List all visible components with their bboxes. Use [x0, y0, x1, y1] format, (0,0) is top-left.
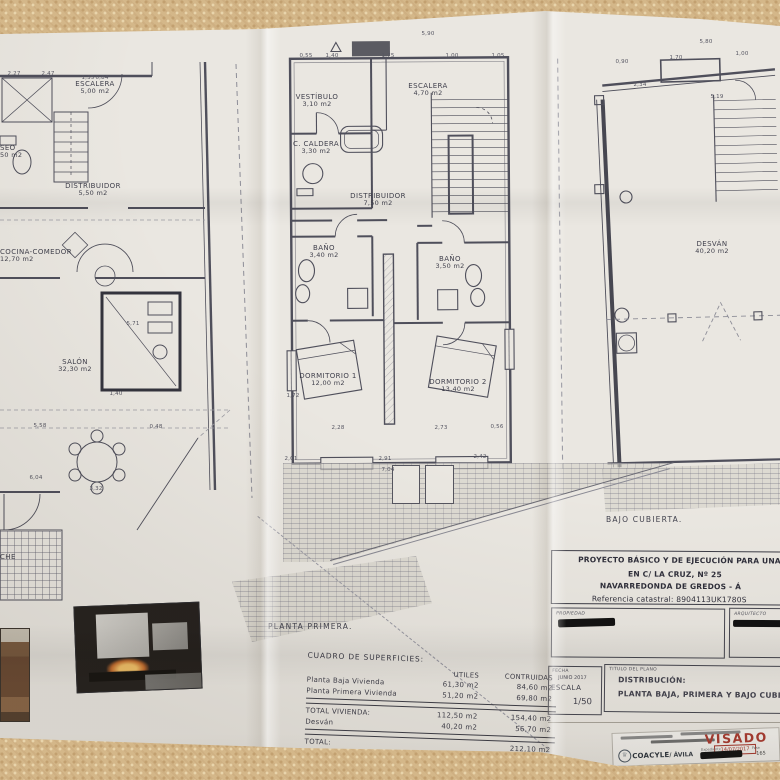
inset-photo-wood-interior	[0, 628, 30, 722]
expediente-redaction-bar	[700, 750, 742, 759]
dimension-label: 0,90	[615, 59, 628, 65]
room-label-salon: SALÓN 32,30 m2	[58, 358, 92, 374]
project-line-1: PROYECTO BÁSICO Y DE EJECUCIÓN PARA UNA …	[578, 555, 780, 566]
escala-fecha-box: FECHA JUNIO 2017 ESCALA 1/50	[548, 666, 603, 716]
fecha-value: JUNIO 2017	[558, 675, 587, 681]
dimension-label: 1,00	[735, 51, 748, 57]
planta-baja-walls	[0, 62, 252, 600]
coacyle-crest-icon: ♕	[618, 749, 631, 762]
dimension-label: 0,48	[149, 424, 162, 430]
fase-number: 165	[756, 751, 766, 757]
escala-label: ESCALA	[551, 684, 581, 692]
caption-planta-primera: PLANTA PRIMERA.	[268, 622, 353, 631]
dimension-label: 5,80	[699, 39, 712, 45]
room-label-vestibulo: VESTÍBULO 3,10 m2	[296, 93, 339, 109]
room-label-bano-2: BAÑO 3,50 m2	[435, 255, 464, 271]
room-label-porche-fragment: CHE	[0, 553, 16, 561]
dimension-label: 2,28	[331, 425, 344, 431]
dimension-label: 2,91	[378, 456, 391, 462]
room-label-bano-1: BAÑO 3,40 m2	[309, 244, 338, 260]
dimension-label: 2,27	[7, 71, 20, 77]
project-line-2: EN C/ LA CRUZ, Nº 25	[628, 569, 722, 579]
coacyle-text: COACYLE	[632, 751, 669, 760]
project-line-4: Referencia catastral: 8904113UK1780S	[592, 594, 747, 604]
sheet-fold-line	[548, 722, 780, 723]
dimension-label: 1,72	[286, 393, 299, 399]
titulo-line-1: DISTRIBUCIÓN:	[618, 675, 686, 685]
arquitecto-redaction-bar	[733, 620, 780, 627]
cuadro-de-superficies: CUADRO DE SUPERFICIES: UTILES CONTRUIDAS…	[304, 651, 557, 756]
room-label-cocina-comedor: COCINA-COMEDOR 12,70 m2	[0, 248, 72, 264]
photo-of-architectural-plan: ESCALERA 5,00 m2 SEO 50 m2 DISTRIBUIDOR …	[0, 0, 780, 780]
propiedad-box: PROPIEDAD	[551, 607, 725, 658]
visado-stamp: VISADO 14/07/2017 ♕ COACYLE / ÁVILA Expe…	[611, 727, 780, 767]
titulo-plano-label: TITULO DEL PLANO	[609, 667, 657, 673]
dimension-label: 7,04	[381, 467, 394, 473]
avila-text: / ÁVILA	[669, 751, 693, 759]
propiedad-label: PROPIEDAD	[556, 611, 585, 616]
dimension-label: 0,56	[490, 424, 503, 430]
room-label-escalera-pb: ESCALERA 5,00 m2	[75, 80, 114, 96]
dimension-label: 1,40	[325, 53, 338, 59]
dimension-label: 2,73	[434, 425, 447, 431]
dimension-label: 2,42	[473, 454, 486, 460]
room-label-caldera: C. CALDERA 3,30 m2	[293, 140, 339, 156]
dimension-label: 2,34	[633, 82, 646, 88]
stamp-smudge	[621, 735, 673, 740]
dimension-label: 1,00	[445, 53, 458, 59]
floor-plan-bajo-cubierta	[549, 35, 780, 520]
caption-bajo-cubierta: BAJO CUBIERTA.	[606, 515, 682, 524]
room-label-dormitorio-1: DORMITORIO 1 12,00 m2	[299, 372, 357, 388]
arquitecto-box: ARQUITECTO	[729, 608, 780, 658]
dimension-label: 2,01	[284, 456, 297, 462]
dimension-label: 5,58	[33, 423, 46, 429]
dimension-label: 5,19	[710, 94, 723, 100]
dimension-label: 5,90	[421, 31, 434, 37]
room-label-dormitorio-2: DORMITORIO 2 13,40 m2	[429, 378, 487, 394]
project-title-box: PROYECTO BÁSICO Y DE EJECUCIÓN PARA UNA …	[551, 550, 780, 606]
project-line-3: NAVARREDONDA DE GREDOS - Á	[600, 581, 741, 591]
dimension-label: 6,04	[29, 475, 42, 481]
room-label-distribuidor-p1: DISTRIBUIDOR 7,50 m2	[350, 192, 406, 208]
room-label-desvan: DESVÁN 40,20 m2	[695, 240, 729, 256]
room-label-escalera-p1: ESCALERA 4,70 m2	[408, 82, 447, 98]
skylight-window	[425, 465, 454, 504]
arquitecto-label: ARQUITECTO	[734, 612, 766, 617]
dimension-label: 1,70	[669, 55, 682, 61]
fecha-label: FECHA	[552, 669, 569, 674]
dimension-label: 2,47	[41, 71, 54, 77]
dimension-label: 0,55	[299, 53, 312, 59]
dimension-label: 5,71	[126, 321, 139, 327]
titulo-plano-box: TITULO DEL PLANO DISTRIBUCIÓN: PLANTA BA…	[604, 664, 780, 714]
dimension-label: 1,40	[109, 391, 122, 397]
skylight-window	[392, 465, 420, 504]
escala-value: 1/50	[573, 697, 592, 707]
drawing-sheet: ESCALERA 5,00 m2 SEO 50 m2 DISTRIBUIDOR …	[0, 0, 780, 780]
dimension-label: 1,05	[491, 53, 504, 59]
porch-paving-grid	[0, 531, 61, 599]
propiedad-redaction-bar	[558, 618, 615, 628]
dimension-label: 1,75	[381, 53, 394, 59]
dimension-label: 3,32	[89, 486, 102, 492]
room-label-aseo-pb: SEO 50 m2	[0, 144, 22, 160]
fase-label: Fase	[752, 746, 760, 750]
inset-photo-fireplace	[73, 602, 202, 694]
bajo-cubierta-walls	[553, 53, 780, 472]
room-label-distribuidor-pb: DISTRIBUIDOR 5,50 m2	[65, 182, 121, 198]
bajo-cubierta-eave-hatch	[602, 463, 780, 512]
titulo-line-2: PLANTA BAJA, PRIMERA Y BAJO CUBIERTA.	[618, 689, 780, 700]
